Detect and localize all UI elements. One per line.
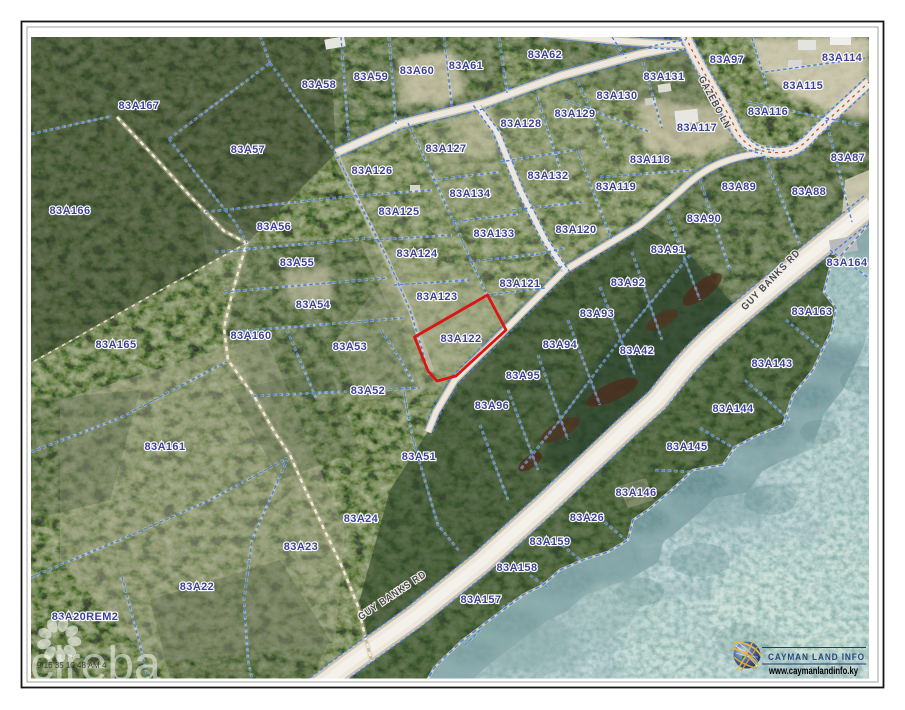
svg-text:83A23: 83A23 xyxy=(284,541,318,553)
svg-text:83A87: 83A87 xyxy=(831,152,865,164)
svg-text:83A24: 83A24 xyxy=(344,513,379,525)
svg-text:83A54: 83A54 xyxy=(296,299,331,311)
svg-text:83A167: 83A167 xyxy=(119,100,160,112)
svg-text:83A131: 83A131 xyxy=(644,71,685,83)
svg-text:9/16 35 10 48 AM 4: 9/16 35 10 48 AM 4 xyxy=(37,661,107,670)
svg-text:83A122: 83A122 xyxy=(441,333,482,345)
svg-text:83A158: 83A158 xyxy=(497,562,538,574)
svg-text:www.caymanlandinfo.ky: www.caymanlandinfo.ky xyxy=(768,665,858,677)
svg-text:83A128: 83A128 xyxy=(501,118,542,130)
svg-text:83A120: 83A120 xyxy=(556,224,597,236)
svg-text:83A93: 83A93 xyxy=(580,308,614,320)
svg-text:83A157: 83A157 xyxy=(461,594,502,606)
svg-text:83A145: 83A145 xyxy=(667,441,708,453)
svg-text:83A22: 83A22 xyxy=(180,581,214,593)
svg-text:83A144: 83A144 xyxy=(713,403,754,415)
svg-text:83A59: 83A59 xyxy=(354,71,388,83)
svg-text:83A164: 83A164 xyxy=(827,257,868,269)
svg-text:83A51: 83A51 xyxy=(402,451,436,463)
svg-text:83A94: 83A94 xyxy=(543,339,578,351)
svg-text:83A159: 83A159 xyxy=(530,536,571,548)
svg-text:83A118: 83A118 xyxy=(630,154,670,166)
svg-text:83A124: 83A124 xyxy=(397,248,438,260)
svg-text:83A53: 83A53 xyxy=(333,341,367,353)
svg-text:83A146: 83A146 xyxy=(616,487,657,499)
svg-text:83A133: 83A133 xyxy=(474,228,515,240)
svg-text:83A161: 83A161 xyxy=(145,441,186,453)
svg-text:83A123: 83A123 xyxy=(417,291,458,303)
svg-text:83A121: 83A121 xyxy=(500,278,541,290)
svg-text:83A52: 83A52 xyxy=(351,385,385,397)
svg-text:83A26: 83A26 xyxy=(570,512,604,524)
svg-text:83A89: 83A89 xyxy=(722,181,756,193)
svg-text:83A166: 83A166 xyxy=(50,205,91,217)
svg-text:83A88: 83A88 xyxy=(792,186,826,198)
svg-text:83A129: 83A129 xyxy=(555,108,596,120)
svg-text:83A95: 83A95 xyxy=(506,370,540,382)
svg-text:83A60: 83A60 xyxy=(400,65,434,77)
svg-text:83A130: 83A130 xyxy=(597,90,638,102)
svg-text:83A92: 83A92 xyxy=(611,277,645,289)
svg-text:83A61: 83A61 xyxy=(449,60,483,72)
svg-text:83A143: 83A143 xyxy=(752,358,793,370)
svg-text:83A126: 83A126 xyxy=(352,165,393,177)
svg-text:CAYMAN LAND INFO: CAYMAN LAND INFO xyxy=(768,652,865,663)
svg-text:83A132: 83A132 xyxy=(528,170,569,182)
svg-text:83A115: 83A115 xyxy=(783,80,823,92)
svg-text:83A55: 83A55 xyxy=(280,257,314,269)
svg-text:83A119: 83A119 xyxy=(596,181,636,193)
svg-text:83A56: 83A56 xyxy=(257,221,291,233)
svg-text:83A125: 83A125 xyxy=(379,206,420,218)
svg-text:83A163: 83A163 xyxy=(792,306,833,318)
svg-text:83A114: 83A114 xyxy=(822,52,863,64)
svg-text:83A117: 83A117 xyxy=(677,122,717,134)
svg-text:83A96: 83A96 xyxy=(475,400,509,412)
svg-text:83A62: 83A62 xyxy=(528,49,562,61)
svg-text:83A165: 83A165 xyxy=(96,339,137,351)
svg-text:83A57: 83A57 xyxy=(231,144,265,156)
svg-text:83A116: 83A116 xyxy=(748,106,788,118)
svg-text:83A134: 83A134 xyxy=(450,188,491,200)
svg-text:83A160: 83A160 xyxy=(231,330,272,342)
svg-text:83A42: 83A42 xyxy=(620,345,654,357)
svg-text:83A91: 83A91 xyxy=(651,244,685,256)
svg-text:83A90: 83A90 xyxy=(687,213,721,225)
svg-text:83A97: 83A97 xyxy=(710,54,744,66)
svg-text:83A127: 83A127 xyxy=(426,143,467,155)
svg-text:83A58: 83A58 xyxy=(302,79,336,91)
